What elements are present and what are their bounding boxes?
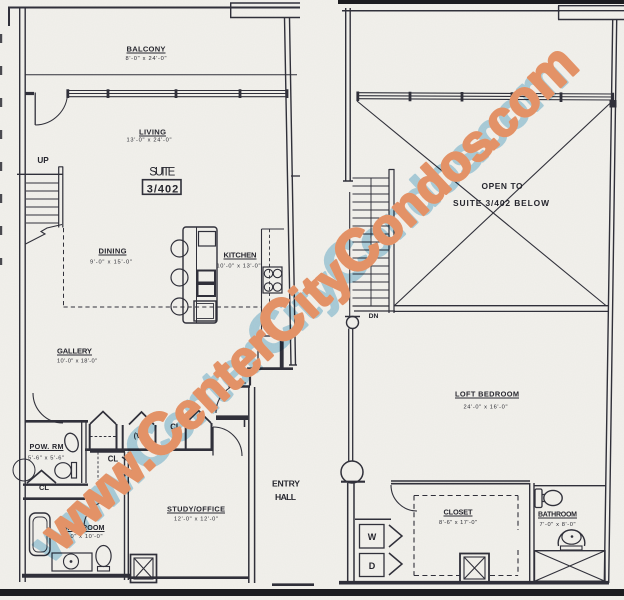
svg-text:5'-6" x 5'-6": 5'-6" x 5'-6" bbox=[28, 456, 64, 462]
svg-text:BALCONY: BALCONY bbox=[127, 45, 166, 54]
svg-text:10'-0" x 13'-0": 10'-0" x 13'-0" bbox=[217, 264, 261, 270]
svg-text:7'-0" x 8'-0": 7'-0" x 8'-0" bbox=[540, 522, 576, 528]
svg-text:SUITE 3/402 BELOW: SUITE 3/402 BELOW bbox=[453, 198, 549, 208]
svg-text:DINING: DINING bbox=[99, 247, 127, 256]
svg-text:13'-0" x 24'-0": 13'-0" x 24'-0" bbox=[127, 138, 172, 144]
svg-text:3/402: 3/402 bbox=[147, 183, 179, 195]
svg-text:KITCHEN: KITCHEN bbox=[224, 251, 257, 260]
svg-text:HALL: HALL bbox=[275, 492, 296, 502]
svg-text:BATHROOM: BATHROOM bbox=[538, 512, 577, 519]
svg-text:STUDY/OFFICE: STUDY/OFFICE bbox=[167, 505, 225, 514]
svg-text:UP: UP bbox=[37, 156, 49, 165]
svg-text:ENTRY: ENTRY bbox=[272, 479, 300, 489]
svg-text:12'-0" x 12'-0": 12'-0" x 12'-0" bbox=[174, 517, 218, 523]
svg-text:GALLERY: GALLERY bbox=[57, 347, 92, 356]
svg-text:8'-0" x 24'-0": 8'-0" x 24'-0" bbox=[126, 56, 167, 62]
svg-text:9'-0" x 15'-0": 9'-0" x 15'-0" bbox=[90, 260, 132, 266]
svg-text:OPEN TO: OPEN TO bbox=[482, 181, 523, 191]
svg-text:D: D bbox=[369, 561, 376, 571]
svg-text:LOFT BEDROOM: LOFT BEDROOM bbox=[455, 390, 519, 399]
svg-text:W: W bbox=[368, 532, 377, 542]
svg-text:SUITE: SUITE bbox=[149, 166, 175, 178]
svg-text:10'-0" x 18'-0": 10'-0" x 18'-0" bbox=[57, 359, 97, 365]
svg-text:CL: CL bbox=[39, 483, 49, 492]
svg-text:DN: DN bbox=[369, 313, 379, 320]
svg-text:CLOSET: CLOSET bbox=[444, 508, 473, 517]
svg-text:24'-0" x 16'-0": 24'-0" x 16'-0" bbox=[464, 405, 508, 411]
svg-text:POW. RM: POW. RM bbox=[30, 442, 64, 451]
svg-text:LIVING: LIVING bbox=[139, 128, 166, 137]
svg-text:8'-6" x 17'-0": 8'-6" x 17'-0" bbox=[439, 520, 477, 526]
